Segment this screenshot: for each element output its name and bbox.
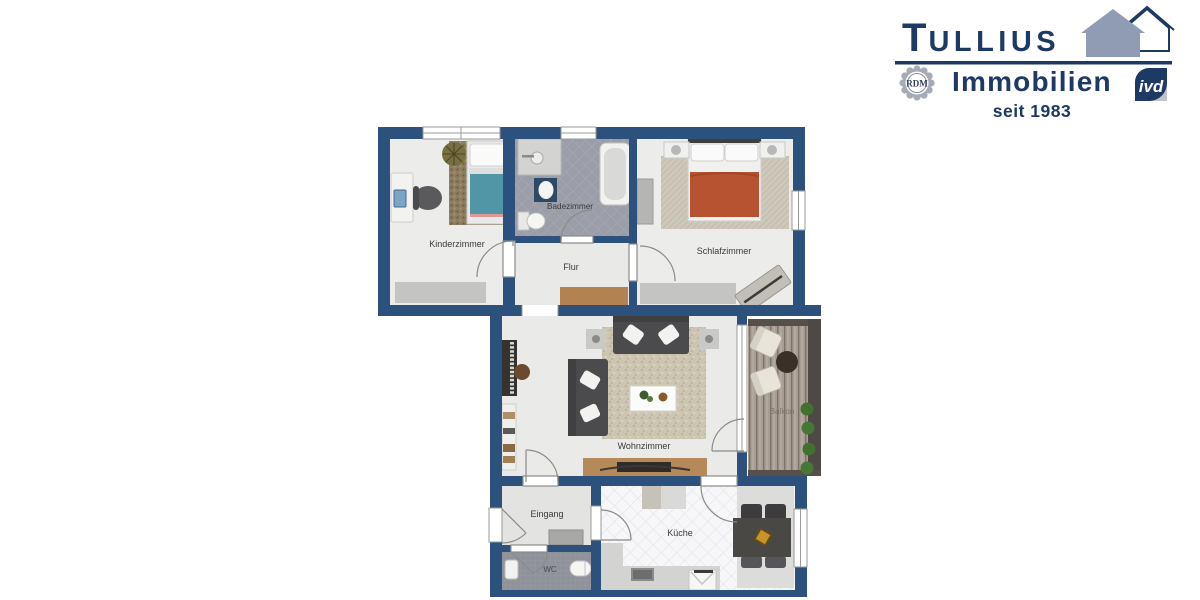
svg-text:ivd: ivd: [1139, 77, 1164, 96]
svg-text:seit 1983: seit 1983: [993, 101, 1071, 121]
svg-text:Küche: Küche: [667, 528, 693, 538]
svg-text:WC: WC: [543, 565, 557, 574]
svg-text:Badezimmer: Badezimmer: [547, 202, 593, 211]
svg-text:Eingang: Eingang: [530, 509, 563, 519]
svg-text:RDM: RDM: [906, 79, 928, 89]
svg-text:Flur: Flur: [563, 262, 579, 272]
svg-text:Schlafzimmer: Schlafzimmer: [697, 246, 752, 256]
svg-text:Wohnzimmer: Wohnzimmer: [618, 441, 671, 451]
svg-text:Kinderzimmer: Kinderzimmer: [429, 239, 485, 249]
svg-text:Balkon: Balkon: [770, 407, 794, 416]
svg-text:Immobilien: Immobilien: [952, 66, 1112, 97]
